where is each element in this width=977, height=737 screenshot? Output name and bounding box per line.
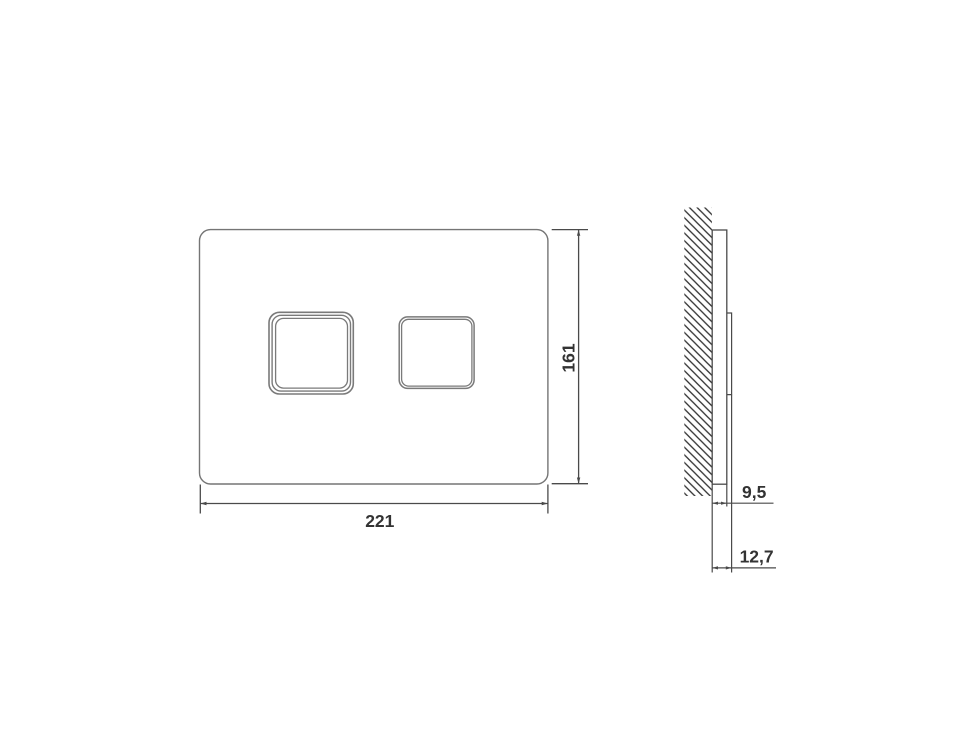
svg-text:221: 221: [365, 511, 394, 531]
svg-text:9,5: 9,5: [742, 482, 767, 502]
svg-text:12,7: 12,7: [740, 547, 774, 567]
svg-text:161: 161: [559, 343, 579, 372]
